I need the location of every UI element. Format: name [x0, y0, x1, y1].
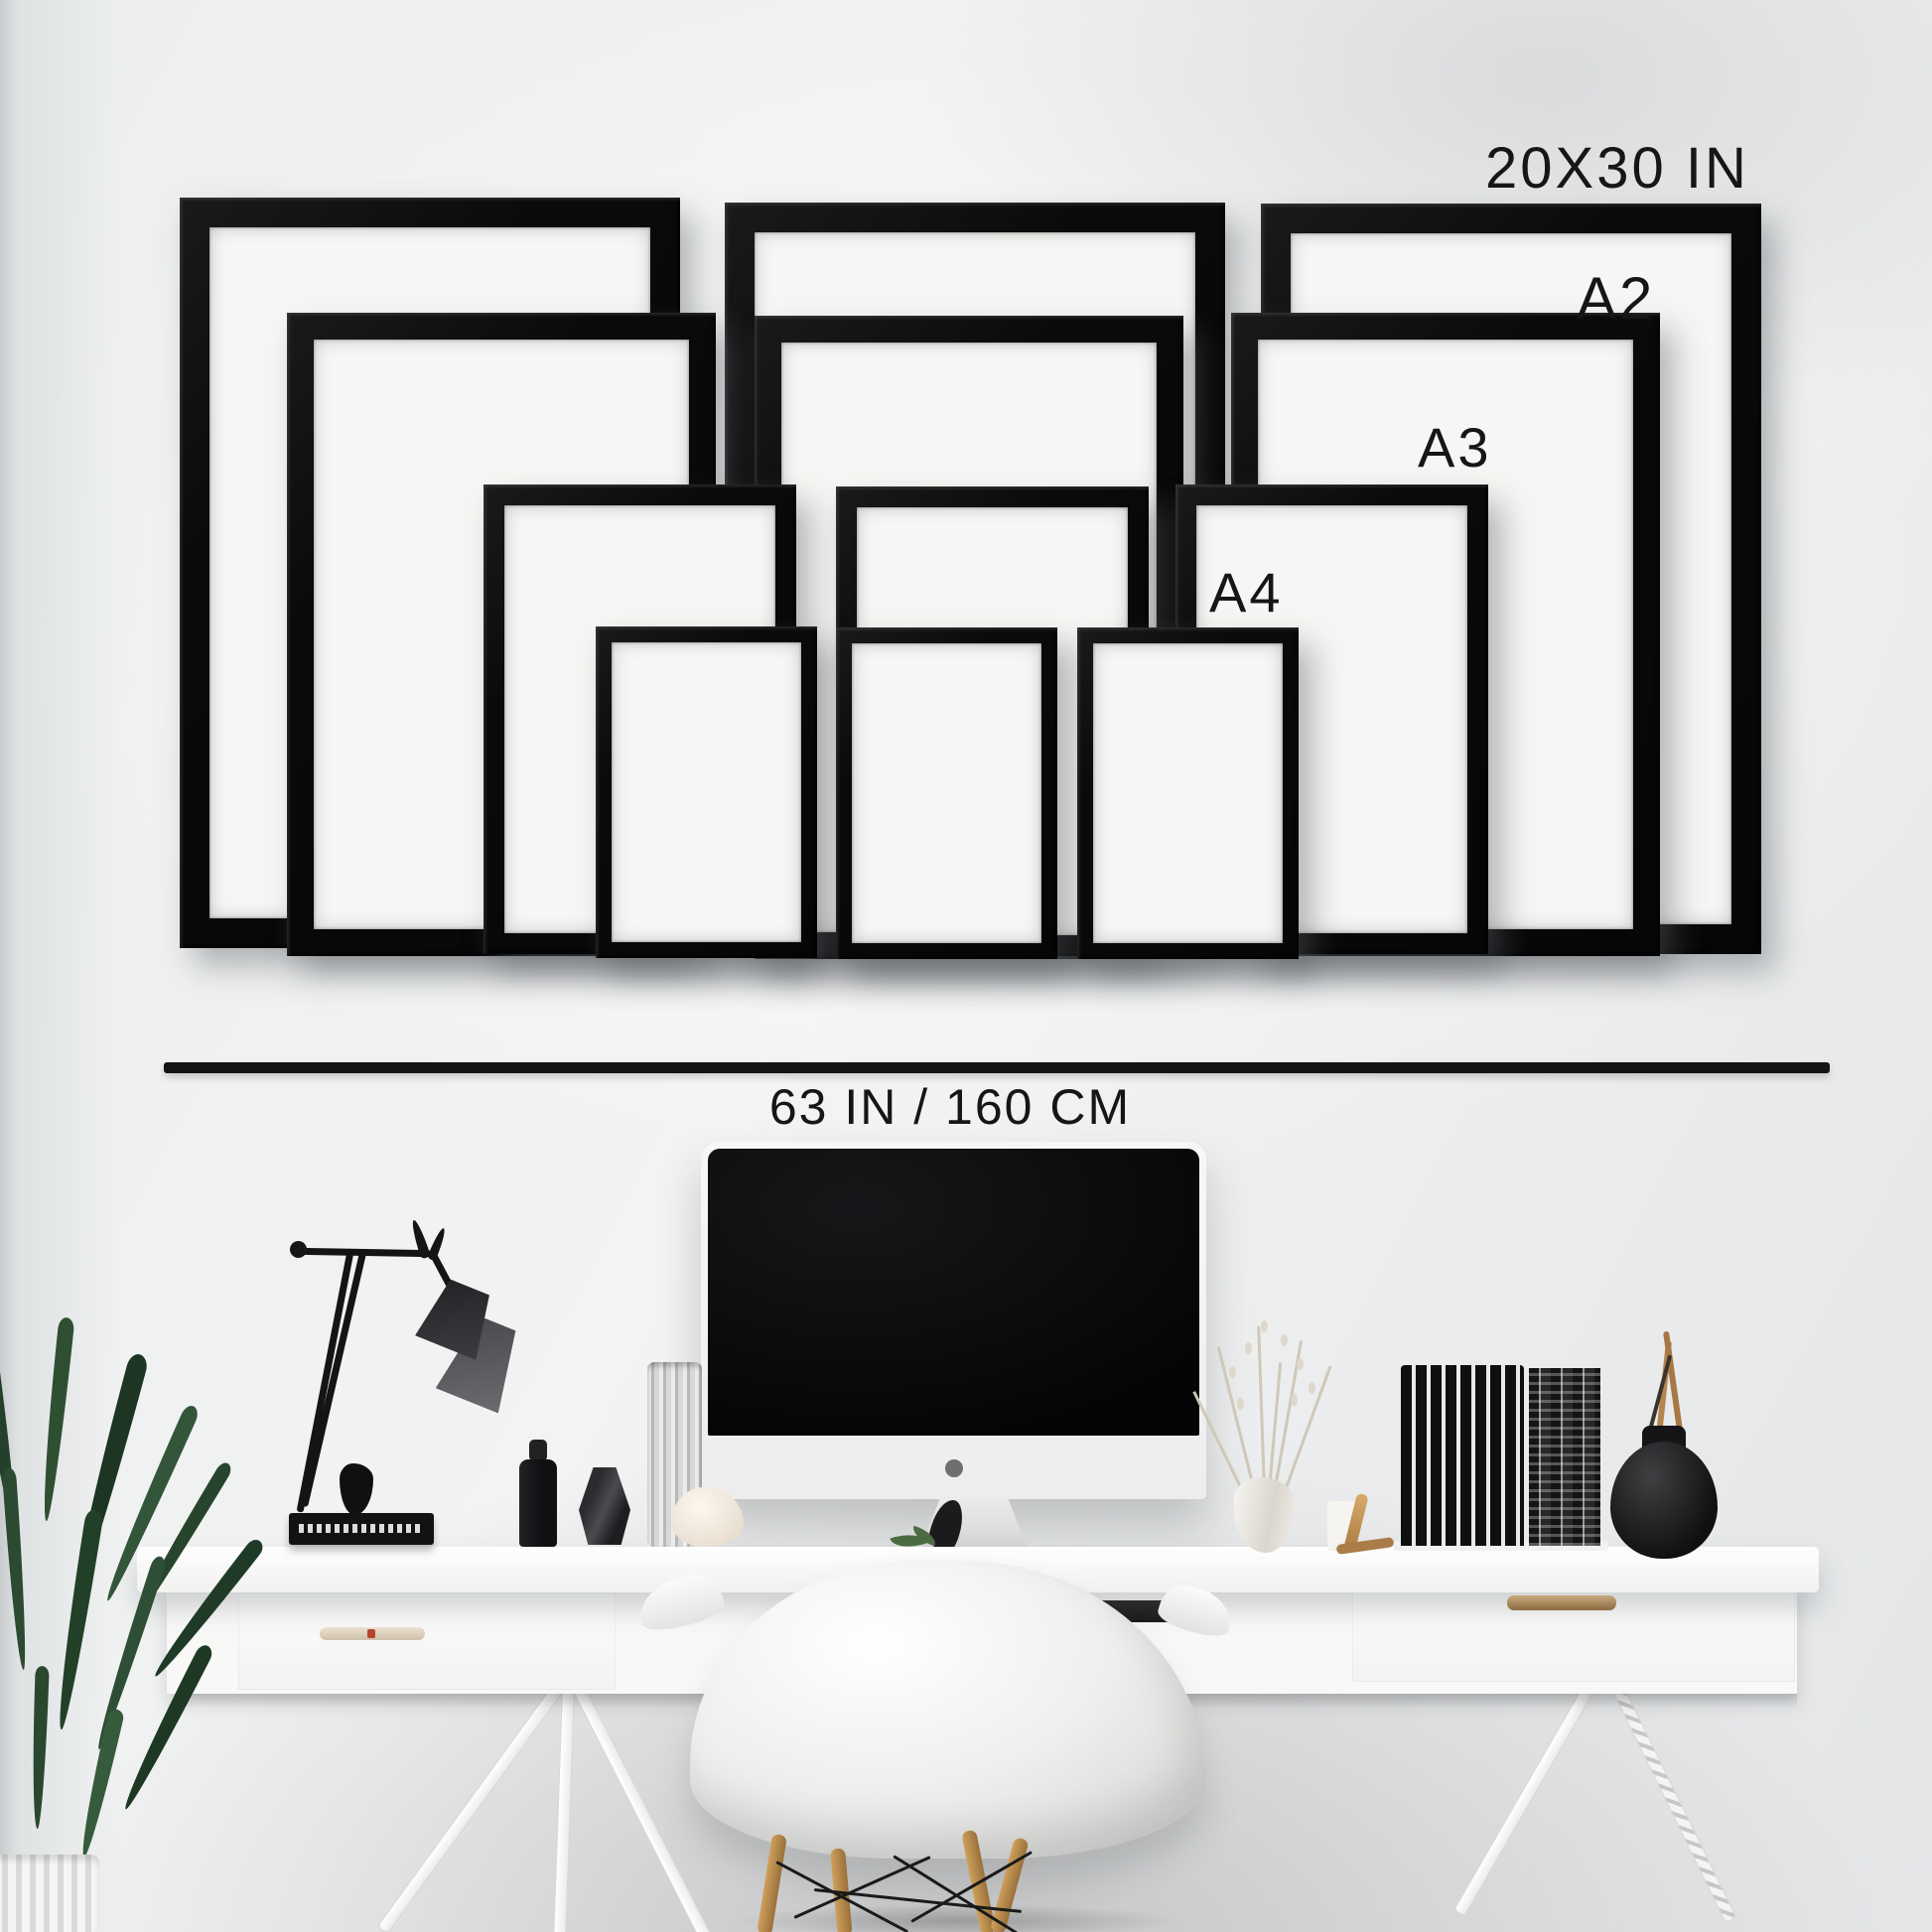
plant-leaf: [91, 1555, 167, 1751]
chair-shadow: [735, 1904, 1181, 1932]
room-scene: 20X30 IN A2 A3 A4 63 IN / 160 CM: [0, 0, 1932, 1932]
frame-paper: [612, 642, 801, 942]
plant-pot: [0, 1855, 99, 1932]
desk-drawer-left: [238, 1592, 616, 1690]
imac-screen: [708, 1149, 1199, 1436]
dried-branch: [1257, 1326, 1266, 1491]
desk-trestle-leg: [1453, 1675, 1600, 1917]
plant-leaf: [52, 1508, 104, 1730]
faceted-vase: [579, 1467, 630, 1545]
plant-leaf: [38, 1316, 74, 1522]
size-label-a3: A3: [1418, 415, 1492, 480]
size-label-a4: A4: [1209, 560, 1284, 624]
drawer-handle-right: [1507, 1595, 1616, 1610]
dried-branch: [1283, 1366, 1331, 1494]
desk-trestle-leg-wrapped: [1607, 1675, 1737, 1923]
size-label-a2: A2: [1577, 264, 1655, 333]
branch-bud: [1297, 1358, 1304, 1370]
drawer-handle-left: [320, 1627, 425, 1640]
branch-bud: [1309, 1382, 1315, 1394]
plant-leaf: [2, 1467, 30, 1670]
frame-paper: [1093, 643, 1283, 943]
black-bottle-cap: [529, 1440, 547, 1461]
width-measure-label: 63 IN / 160 CM: [702, 1078, 1198, 1136]
apple-logo-icon: [945, 1459, 963, 1477]
branch-bud: [1281, 1334, 1288, 1346]
black-bottle: [519, 1459, 557, 1547]
imac-computer: [701, 1142, 1206, 1499]
size-label-20x30: 20X30 IN: [1485, 135, 1749, 202]
plant-leaf: [30, 1666, 50, 1829]
measure-line: [164, 1062, 1830, 1073]
white-twisted-vase: [1234, 1477, 1294, 1553]
black-round-vase: [1610, 1442, 1718, 1559]
handle-accent: [367, 1629, 375, 1638]
lamp-base-spine-texture: [299, 1524, 420, 1533]
lamp-base: [289, 1513, 434, 1545]
desk-trestle-leg: [553, 1688, 575, 1932]
branch-bud: [1237, 1398, 1244, 1410]
frame-a4-right: [1077, 627, 1299, 959]
dried-branch: [1217, 1346, 1256, 1491]
lamp-arm-top: [298, 1248, 431, 1257]
frame-a4-middle: [836, 627, 1057, 959]
frame-a4-left: [596, 626, 817, 958]
branch-bud: [1229, 1366, 1236, 1378]
desk-trestle-leg: [377, 1684, 564, 1932]
frame-paper: [852, 643, 1041, 943]
striped-book-spines: [1529, 1368, 1600, 1546]
lamp-base-joint: [340, 1463, 373, 1515]
black-file-set: [1401, 1365, 1524, 1546]
lamp-elbow-joint: [290, 1241, 307, 1258]
branch-bud: [1245, 1342, 1252, 1354]
branch-bud: [1261, 1320, 1268, 1332]
branch-bud: [1291, 1394, 1298, 1406]
